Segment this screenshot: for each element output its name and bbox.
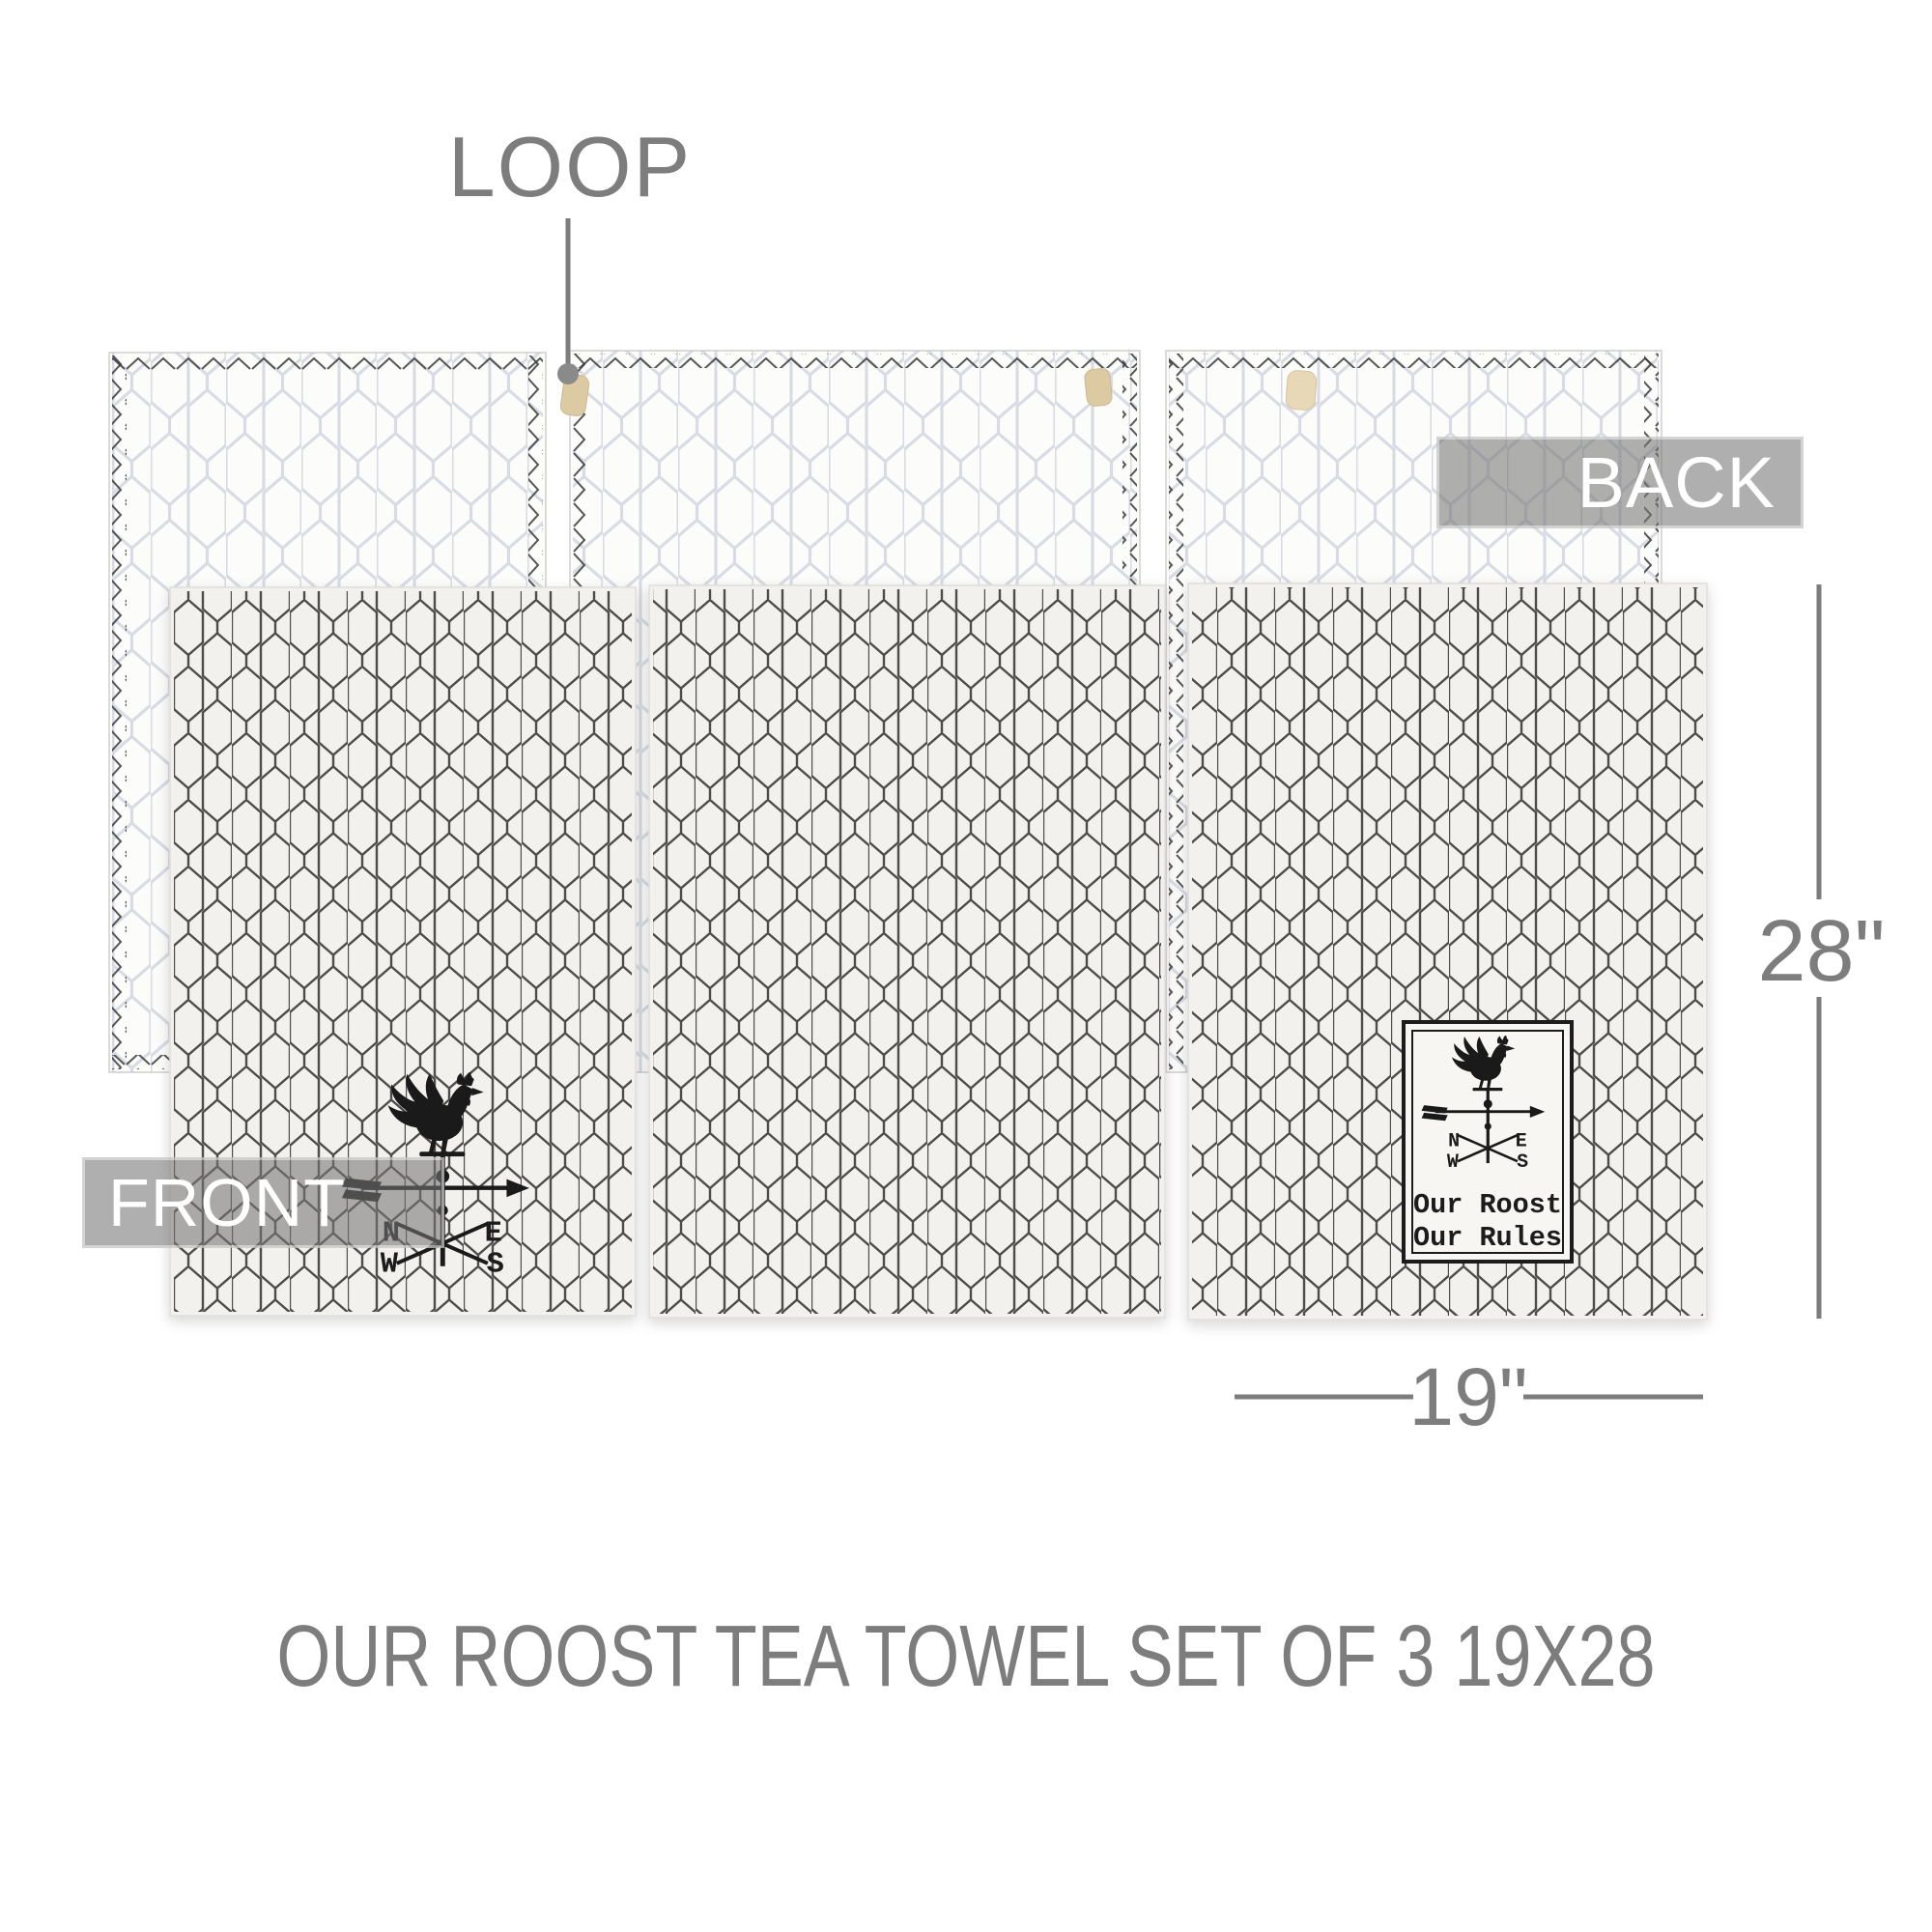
loop-leader-dot [557,363,579,384]
our-roost-stamp: Our Roost Our Rules [1404,1022,1572,1262]
product-image-page: N E W S [0,0,1932,1932]
loop-tag [1286,370,1318,411]
width-label: 19" [1372,1350,1565,1444]
towel-front-middle [649,585,1165,1318]
stamp-line2: Our Rules [1413,1222,1562,1254]
front-banner: FRONT [82,1157,444,1248]
caption-text: OUR ROOST TEA TOWEL SET OF 3 19X28 [276,1607,1655,1707]
loop-label: LOOP [425,118,715,216]
caption: OUR ROOST TEA TOWEL SET OF 3 19X28 [0,1607,1932,1707]
stamp-line1: Our Roost [1413,1189,1562,1221]
front-banner-label: FRONT [108,1164,346,1241]
height-label: 28" [1737,902,1906,1002]
back-banner: BACK [1436,437,1804,528]
loop-tag [1084,368,1113,408]
towel-front-right: Our Roost Our Rules [1188,583,1707,1320]
back-banner-label: BACK [1577,441,1776,524]
